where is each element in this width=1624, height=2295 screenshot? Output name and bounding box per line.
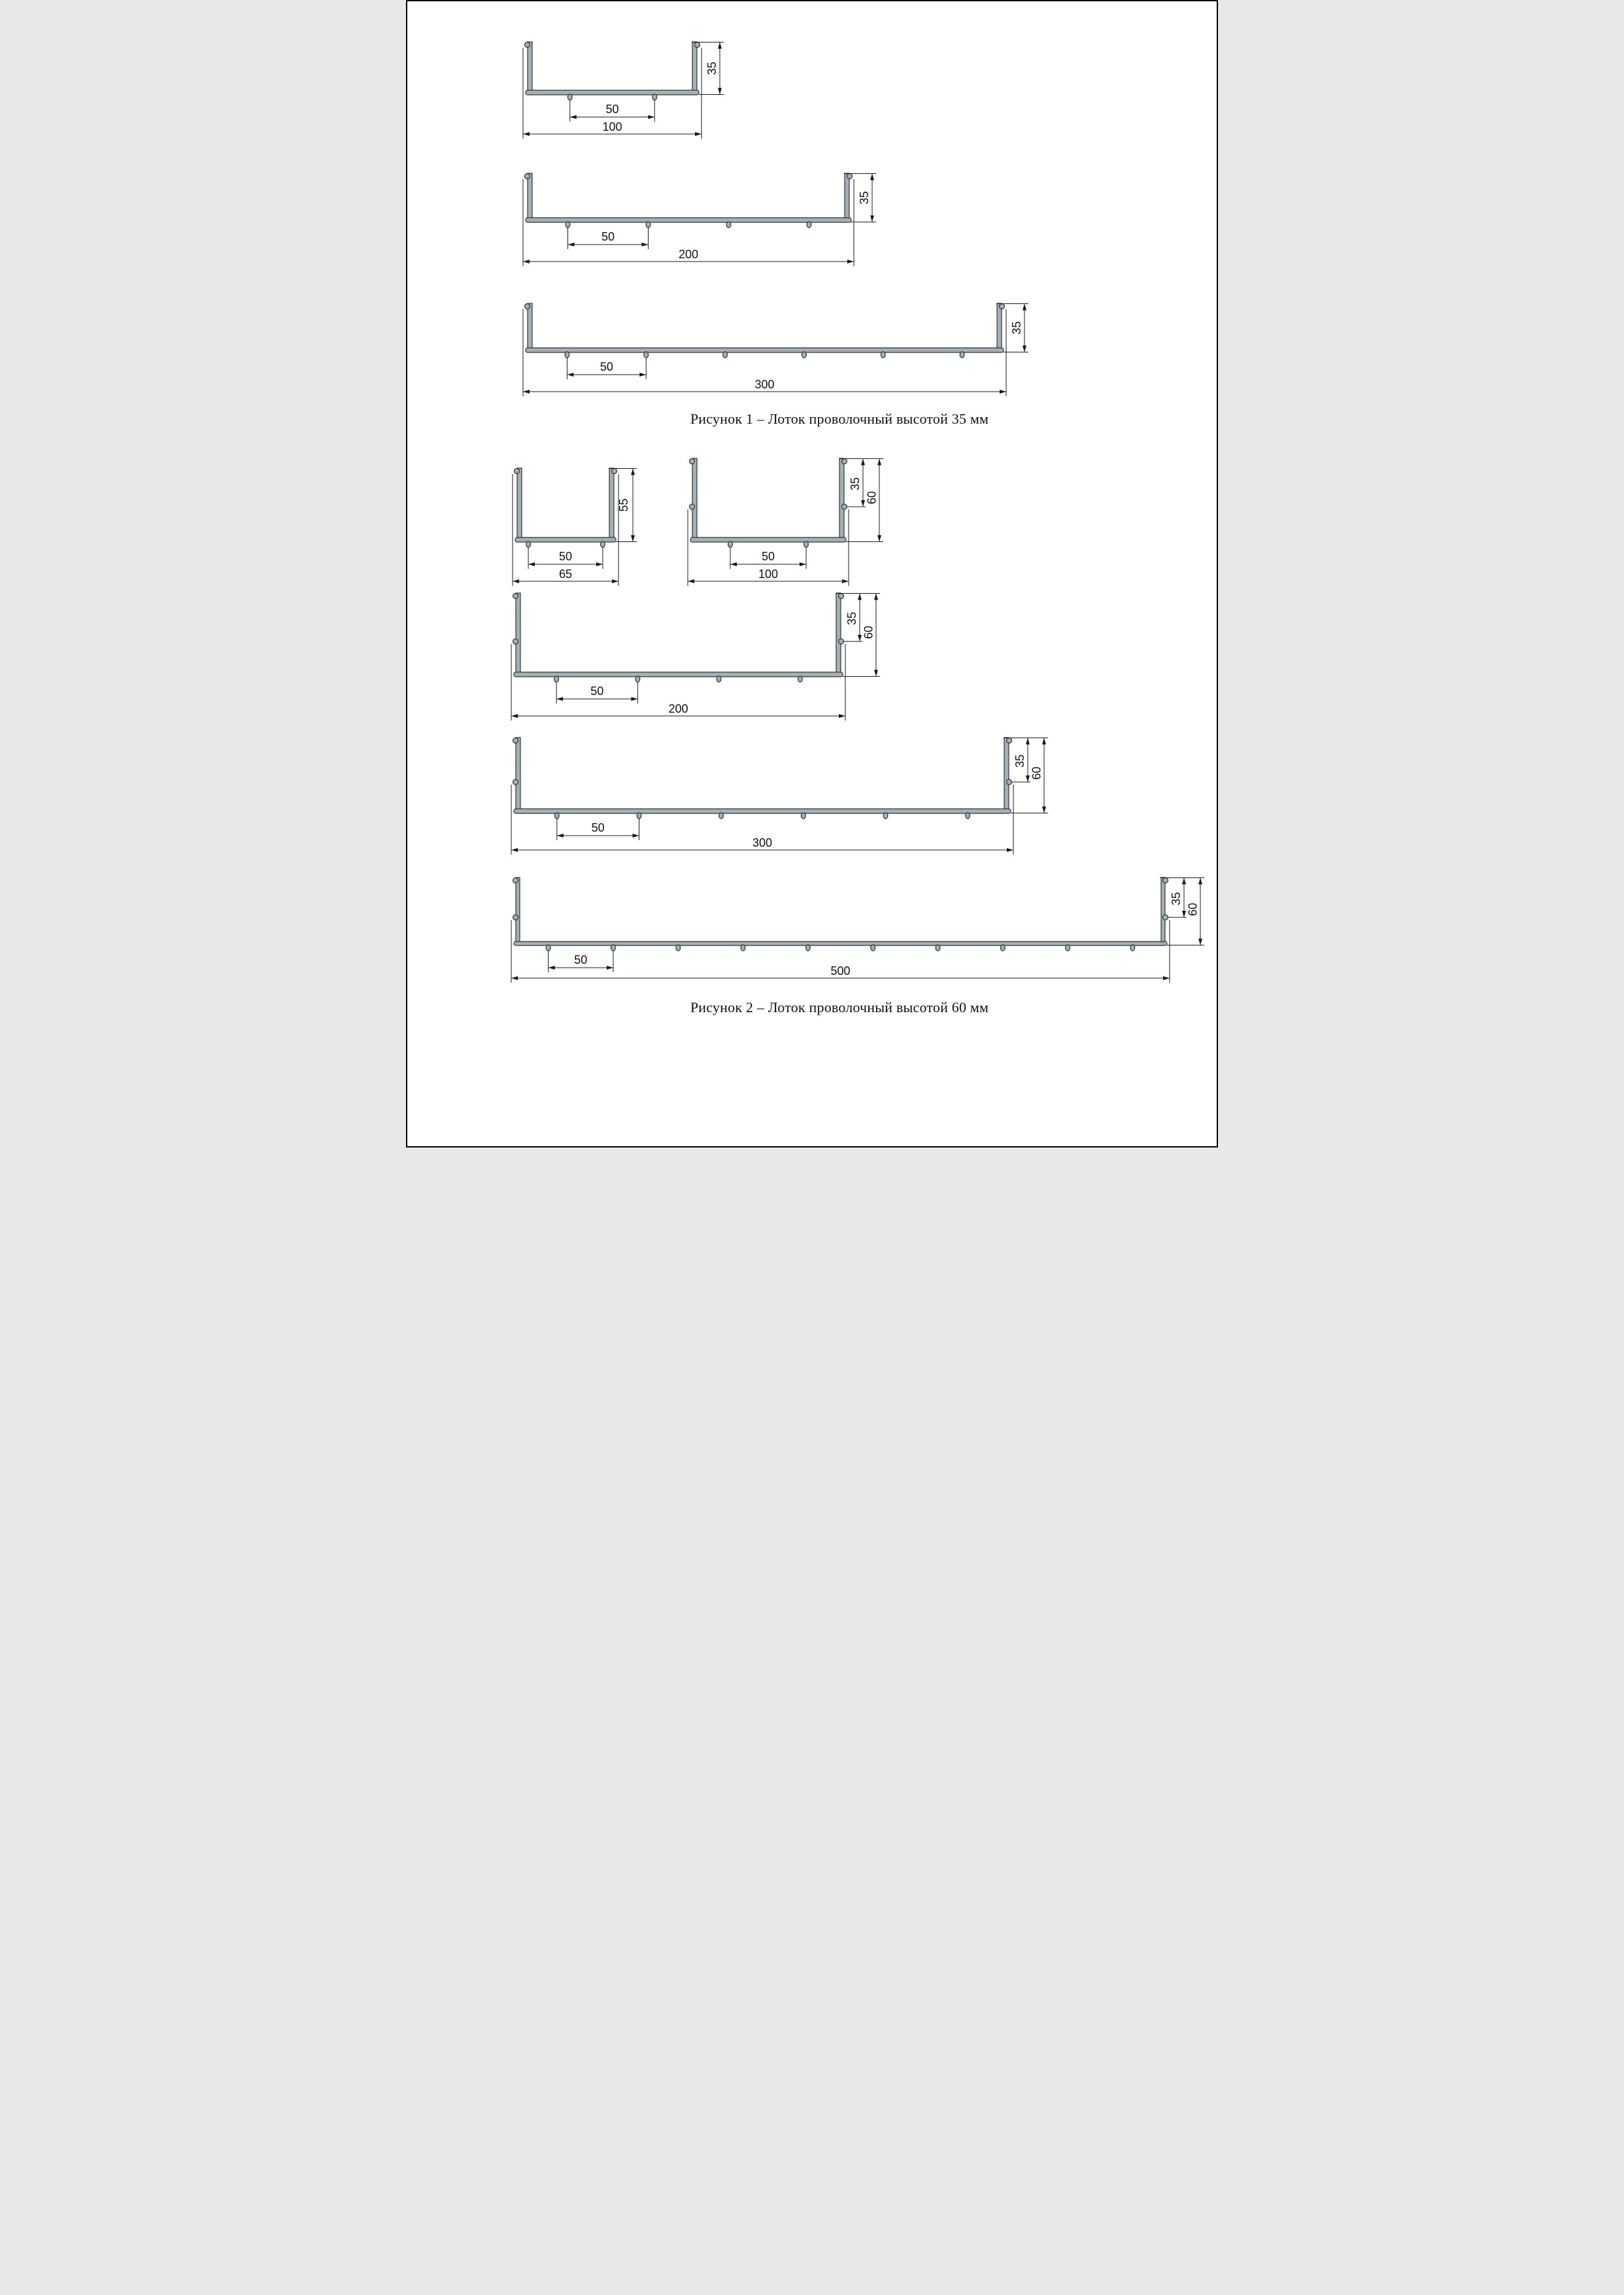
bottom-wire: [883, 813, 888, 819]
spacing-dimension: 50: [730, 547, 806, 569]
spacing-label: 50: [762, 550, 775, 563]
bottom-wire: [936, 945, 940, 951]
side-wall-left: [516, 738, 520, 811]
dimension-arrow-icon: [631, 535, 635, 542]
dimension-arrow-icon: [1198, 878, 1202, 885]
bottom-wire: [881, 352, 885, 358]
side-wall-right: [692, 42, 697, 93]
dimension-arrow-icon: [695, 132, 702, 136]
side-wall-right: [609, 468, 614, 540]
height-dimension: 3560: [1004, 738, 1048, 813]
side-wall-left: [692, 458, 697, 540]
dimension-arrow-icon: [556, 697, 563, 701]
height-dimension: 3560: [839, 459, 883, 542]
side-wall-left: [528, 42, 532, 93]
bottom-wire: [554, 676, 559, 682]
dimension-arrow-icon: [861, 459, 865, 466]
bottom-wire: [798, 676, 802, 682]
dimension-arrow-icon: [557, 834, 564, 838]
width-label: 500: [830, 964, 850, 977]
spacing-label: 50: [590, 685, 603, 698]
tray-300x35-drawing: 5030035: [523, 303, 1028, 396]
mid-wire-left: [690, 504, 695, 509]
mid-height-label: 35: [1170, 892, 1183, 905]
mid-wire-left: [513, 639, 518, 644]
dimension-arrow-icon: [523, 132, 530, 136]
width-dimension: 300: [511, 785, 1013, 855]
bottom-wire: [567, 94, 572, 100]
side-wall-right: [839, 458, 844, 540]
dimension-arrow-icon: [1026, 738, 1030, 745]
tray-100x60-drawing: 501003560: [688, 458, 883, 586]
width-label: 300: [753, 836, 772, 849]
top-wire-left: [525, 304, 530, 309]
bottom-wire: [1130, 945, 1135, 951]
bottom-wire: [611, 945, 616, 951]
bottom-wire: [741, 945, 745, 951]
dimension-arrow-icon: [612, 579, 618, 583]
width-label: 65: [559, 568, 572, 581]
side-wall-left: [516, 593, 520, 675]
dimension-arrow-icon: [523, 260, 530, 263]
dimension-arrow-icon: [639, 373, 646, 377]
spacing-label: 50: [601, 230, 615, 243]
side-wall-right: [1161, 877, 1165, 943]
bottom-wire: [717, 676, 721, 682]
dimension-arrow-icon: [1182, 878, 1186, 885]
dimension-arrow-icon: [800, 562, 806, 566]
top-wire-left: [513, 594, 518, 599]
dimension-arrow-icon: [1023, 304, 1026, 311]
height-label: 60: [1187, 903, 1200, 916]
floor-bar: [515, 537, 616, 542]
height-label: 60: [1030, 767, 1043, 780]
mid-wire-right: [839, 639, 844, 644]
dimension-arrow-icon: [511, 976, 518, 980]
top-wire-left: [690, 459, 695, 464]
bottom-wire: [646, 222, 651, 228]
dimension-arrow-icon: [870, 174, 874, 180]
dimension-arrow-icon: [570, 115, 577, 119]
dimension-arrow-icon: [648, 115, 654, 119]
dimension-arrow-icon: [523, 390, 530, 394]
bottom-wire: [526, 541, 531, 547]
dimension-arrow-icon: [596, 562, 603, 566]
spacing-dimension: 50: [568, 228, 649, 249]
side-wall-right: [997, 303, 1002, 350]
diagram-canvas: 5010035502003550300355065555010035605020…: [407, 1, 1218, 1147]
side-wall-right: [845, 173, 849, 220]
dimension-arrow-icon: [1163, 976, 1170, 980]
width-dimension: 500: [511, 920, 1170, 983]
dimension-arrow-icon: [1026, 775, 1030, 782]
bottom-wire: [554, 813, 559, 819]
spacing-label: 50: [600, 360, 613, 373]
spacing-dimension: 50: [557, 819, 639, 840]
bottom-wire: [601, 541, 605, 547]
dimension-arrow-icon: [568, 243, 575, 246]
mid-wire-left: [513, 915, 518, 920]
floor-bar: [526, 90, 699, 95]
dimension-arrow-icon: [877, 535, 881, 542]
width-dimension: 65: [513, 474, 618, 586]
document-page: 5010035502003550300355065555010035605020…: [406, 0, 1218, 1147]
height-label: 35: [1010, 321, 1023, 334]
top-wire-right: [695, 42, 700, 48]
dimension-arrow-icon: [839, 714, 845, 718]
width-label: 100: [758, 568, 778, 581]
floor-bar: [526, 218, 851, 222]
bottom-wire: [726, 222, 731, 228]
bottom-wire: [1066, 945, 1070, 951]
dimension-arrow-icon: [528, 562, 535, 566]
mid-wire-right: [842, 504, 847, 509]
spacing-dimension: 50: [549, 951, 613, 972]
bottom-wire: [804, 541, 809, 547]
width-label: 300: [754, 378, 774, 391]
bottom-wire: [807, 222, 811, 228]
dimension-arrow-icon: [633, 834, 639, 838]
height-label: 35: [858, 191, 871, 204]
top-wire-right: [1000, 304, 1005, 309]
width-label: 200: [679, 248, 698, 261]
dimension-arrow-icon: [874, 670, 878, 677]
dimension-arrow-icon: [549, 966, 555, 970]
dimension-arrow-icon: [718, 88, 722, 95]
spacing-dimension: 50: [567, 358, 646, 379]
bottom-wire: [802, 352, 807, 358]
top-wire-right: [1007, 738, 1012, 743]
width-dimension: 200: [511, 644, 845, 721]
spacing-label: 50: [559, 550, 572, 563]
mid-height-label: 35: [845, 612, 858, 625]
height-label: 35: [705, 61, 719, 75]
dimension-arrow-icon: [730, 562, 737, 566]
dimension-arrow-icon: [874, 594, 878, 600]
bottom-wire: [637, 813, 641, 819]
height-label: 60: [866, 491, 879, 504]
mid-height-label: 35: [849, 477, 862, 490]
dimension-arrow-icon: [607, 966, 613, 970]
spacing-label: 50: [592, 821, 605, 834]
top-wire-left: [525, 174, 530, 179]
bottom-wire: [723, 352, 728, 358]
bottom-wire: [966, 813, 970, 819]
top-wire-right: [839, 594, 844, 599]
dimension-arrow-icon: [631, 697, 637, 701]
bottom-wire: [566, 222, 570, 228]
dimension-arrow-icon: [567, 373, 573, 377]
dimension-arrow-icon: [842, 579, 849, 583]
dimension-arrow-icon: [877, 459, 881, 466]
dimension-arrow-icon: [511, 848, 518, 852]
dimension-arrow-icon: [688, 579, 694, 583]
top-wire-left: [513, 738, 518, 743]
spacing-dimension: 50: [570, 100, 655, 122]
dimension-arrow-icon: [858, 635, 862, 641]
top-wire-left: [515, 469, 520, 474]
dimension-arrow-icon: [631, 469, 635, 475]
floor-bar: [514, 809, 1011, 813]
bottom-wire: [719, 813, 724, 819]
height-dimension: 3560: [1160, 878, 1204, 945]
bottom-wire: [1000, 945, 1005, 951]
height-label: 55: [617, 498, 630, 511]
dimension-arrow-icon: [870, 216, 874, 222]
top-wire-right: [612, 469, 617, 474]
width-label: 100: [602, 120, 622, 133]
bottom-wire: [728, 541, 733, 547]
tray-200x35-drawing: 5020035: [523, 173, 876, 266]
dimension-arrow-icon: [847, 260, 854, 263]
dimension-arrow-icon: [718, 42, 722, 49]
spacing-dimension: 50: [528, 547, 603, 569]
spacing-label: 50: [605, 103, 618, 116]
floor-bar: [690, 537, 846, 542]
mid-wire-left: [513, 779, 518, 785]
dimension-arrow-icon: [513, 579, 519, 583]
side-wall-right: [836, 593, 841, 675]
dimension-arrow-icon: [1042, 807, 1046, 813]
dimension-arrow-icon: [1042, 738, 1046, 745]
spacing-label: 50: [574, 953, 587, 966]
tray-65x55-drawing: 506555: [513, 468, 637, 586]
mid-wire-right: [1163, 915, 1168, 920]
bottom-wire: [635, 676, 640, 682]
figure-2-caption: Рисунок 2 – Лоток проволочный высотой 60…: [690, 999, 989, 1016]
dimension-arrow-icon: [1007, 848, 1013, 852]
bottom-wire: [801, 813, 805, 819]
top-wire-right: [1163, 878, 1168, 883]
width-label: 200: [668, 702, 688, 715]
side-wall-left: [528, 303, 532, 350]
side-wall-left: [516, 877, 520, 943]
bottom-wire: [960, 352, 964, 358]
bottom-wire: [805, 945, 810, 951]
dimension-arrow-icon: [1023, 346, 1026, 352]
side-wall-left: [517, 468, 522, 540]
tray-100x35-drawing: 5010035: [523, 42, 724, 139]
top-wire-right: [842, 459, 847, 464]
dimension-arrow-icon: [642, 243, 649, 246]
side-wall-right: [1004, 738, 1009, 811]
width-dimension: 100: [688, 509, 849, 586]
mid-height-label: 35: [1013, 755, 1026, 768]
floor-bar: [514, 672, 843, 677]
bottom-wire: [652, 94, 657, 100]
tray-500x60-drawing: 505003560: [511, 877, 1204, 983]
bottom-wire: [644, 352, 649, 358]
dimension-arrow-icon: [858, 594, 862, 600]
side-wall-left: [528, 173, 532, 220]
bottom-wire: [676, 945, 681, 951]
height-dimension: 3560: [836, 594, 880, 677]
tray-300x60-drawing: 503003560: [511, 738, 1048, 855]
dimension-arrow-icon: [1182, 911, 1186, 917]
mid-wire-right: [1007, 779, 1012, 785]
top-wire-left: [513, 878, 518, 883]
tray-200x60-drawing: 502003560: [511, 593, 880, 721]
dimension-arrow-icon: [1000, 390, 1006, 394]
bottom-wire: [565, 352, 569, 358]
bottom-wire: [546, 945, 550, 951]
figure-1-caption: Рисунок 1 – Лоток проволочный высотой 35…: [690, 411, 989, 428]
height-label: 60: [862, 626, 875, 639]
dimension-arrow-icon: [1198, 939, 1202, 945]
dimension-arrow-icon: [861, 500, 865, 507]
top-wire-right: [847, 174, 853, 179]
floor-bar: [526, 348, 1004, 352]
top-wire-left: [525, 42, 530, 48]
dimension-arrow-icon: [511, 714, 518, 718]
bottom-wire: [871, 945, 875, 951]
spacing-dimension: 50: [556, 682, 637, 704]
